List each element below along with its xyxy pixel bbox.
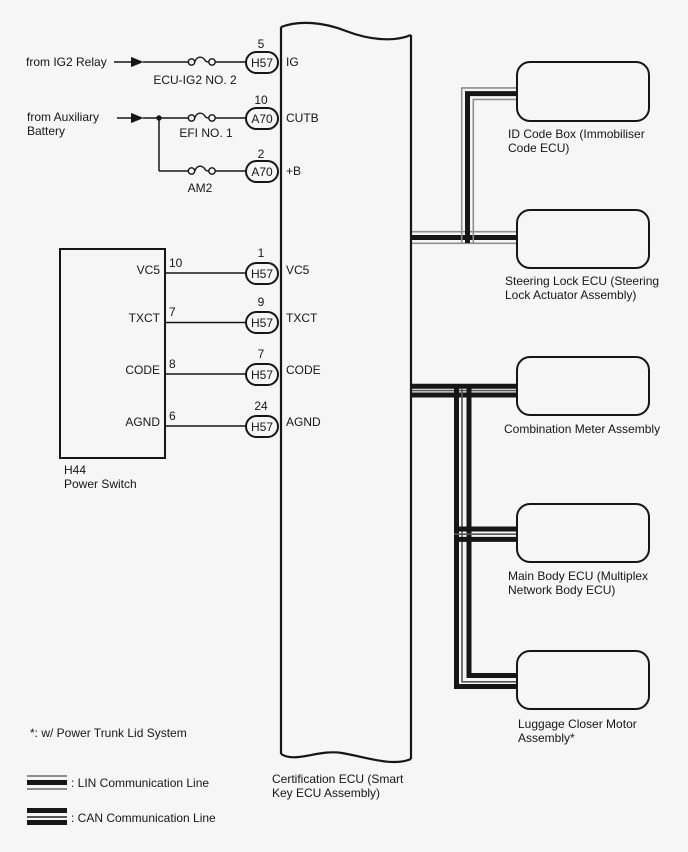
device-box-steering-lock <box>516 209 650 269</box>
device-box-id-code-box <box>516 61 650 122</box>
arrow-icon <box>131 57 144 123</box>
device-label-id-code-box: ID Code Box (Immobiliser Code ECU) <box>508 127 660 155</box>
connector-code: H57 <box>251 368 273 382</box>
power-switch-wires <box>166 273 246 426</box>
connector-code: H57 <box>251 56 273 70</box>
fuse-label-efi: EFI NO. 1 <box>179 127 232 139</box>
ecu-pin-number-txct: 9 <box>258 296 265 308</box>
pin-number-cutb: 10 <box>254 94 267 106</box>
switch-pin-number-vc5: 10 <box>169 257 182 269</box>
power-switch-label: H44 Power Switch <box>64 464 137 491</box>
junction-dot <box>156 115 161 120</box>
switch-pin-number-txct: 7 <box>169 306 176 318</box>
wiring-diagram: from IG2 Relay from Auxiliary Battery EC… <box>0 0 688 852</box>
can-line-symbol <box>27 808 67 825</box>
footnote: *: w/ Power Trunk Lid System <box>30 727 187 739</box>
connector-oval-vc5: H57 <box>245 262 279 285</box>
switch-terminal-code: CODE <box>60 364 160 376</box>
connector-oval-code: H57 <box>245 363 279 386</box>
fuse-icon-am2 <box>188 166 215 174</box>
lin-line <box>412 88 517 243</box>
switch-pin-number-agnd: 6 <box>169 410 176 422</box>
fuse-label-am2: AM2 <box>188 182 213 194</box>
device-box-luggage-closer <box>516 650 650 710</box>
connector-oval-agnd: H57 <box>245 415 279 438</box>
fuse-icon-ecu-ig2 <box>188 57 215 65</box>
ecu-outline <box>281 23 411 762</box>
connector-code: A70 <box>251 165 272 179</box>
device-box-combination-meter <box>516 356 650 416</box>
connector-oval-txct: H57 <box>245 311 279 334</box>
ecu-terminal-agnd: AGND <box>286 416 321 428</box>
terminal-label-b: +B <box>286 165 301 177</box>
device-label-main-body-ecu: Main Body ECU (Multiplex Network Body EC… <box>508 569 663 597</box>
switch-terminal-vc5: VC5 <box>60 264 160 276</box>
ecu-pin-number-vc5: 1 <box>258 247 265 259</box>
can-legend-label: : CAN Communication Line <box>71 812 216 824</box>
pin-number-ig: 5 <box>258 38 265 50</box>
switch-terminal-agnd: AGND <box>60 416 160 428</box>
ecu-pin-number-agnd: 24 <box>254 400 267 412</box>
lin-line-symbol <box>27 775 67 790</box>
connector-code: H57 <box>251 267 273 281</box>
source-label-auxiliary-battery: from Auxiliary Battery <box>27 111 99 138</box>
ecu-pin-number-code: 7 <box>258 348 265 360</box>
terminal-label-ig: IG <box>286 56 299 68</box>
lin-legend-label: : LIN Communication Line <box>71 777 209 789</box>
switch-pin-number-code: 8 <box>169 358 176 370</box>
connector-oval-ig: H57 <box>245 51 279 74</box>
source-label-ig2-relay: from IG2 Relay <box>26 56 107 68</box>
ecu-terminal-code: CODE <box>286 364 321 376</box>
can-line <box>412 386 517 686</box>
ecu-terminal-vc5: VC5 <box>286 264 309 276</box>
connector-oval-cutb: A70 <box>245 107 279 130</box>
device-label-steering-lock: Steering Lock ECU (Steering Lock Actuato… <box>505 274 673 302</box>
terminal-label-cutb: CUTB <box>286 112 319 124</box>
can-symbol-thick-bar <box>27 820 67 825</box>
fuse-label-ecu-ig2: ECU-IG2 NO. 2 <box>153 74 236 86</box>
lin-symbol-thin-bar <box>27 788 67 790</box>
ecu-terminal-txct: TXCT <box>286 312 317 324</box>
connector-oval-b: A70 <box>245 160 279 183</box>
pin-number-b: 2 <box>258 148 265 160</box>
connector-code: H57 <box>251 316 273 330</box>
fuse-icon-efi <box>188 113 215 121</box>
connector-code: A70 <box>251 112 272 126</box>
device-box-main-body-ecu <box>516 503 650 563</box>
device-label-combination-meter: Combination Meter Assembly <box>504 422 684 436</box>
ecu-label: Certification ECU (Smart Key ECU Assembl… <box>272 772 424 800</box>
device-label-luggage-closer: Luggage Closer Motor Assembly* <box>518 717 653 745</box>
connector-code: H57 <box>251 420 273 434</box>
switch-terminal-txct: TXCT <box>60 312 160 324</box>
